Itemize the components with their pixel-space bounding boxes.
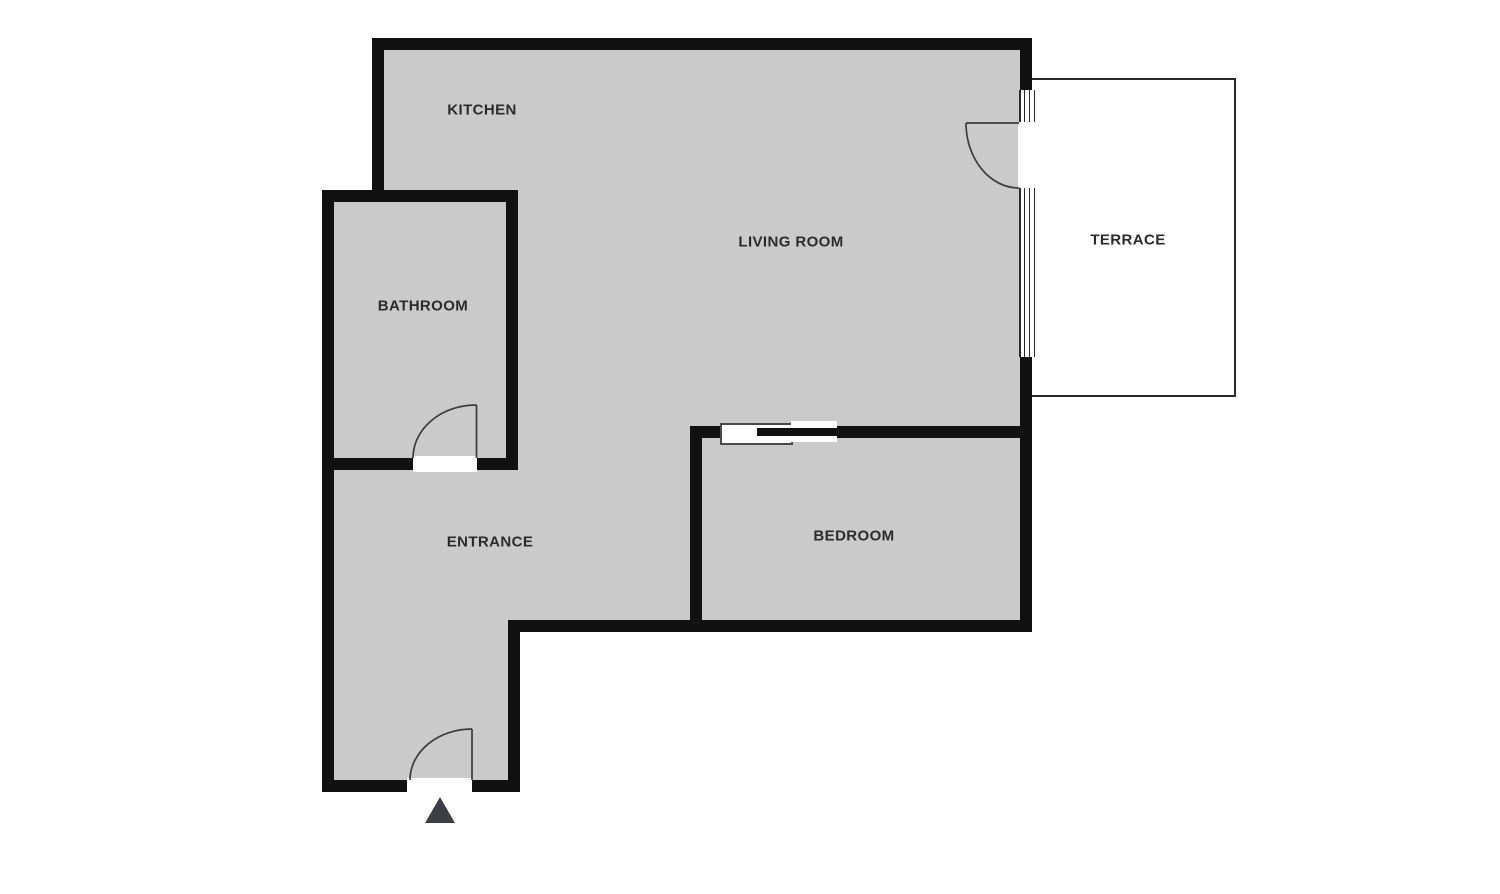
- wall-right-upper-stub: [1020, 38, 1032, 92]
- wall-left: [322, 190, 334, 792]
- wall-bedroom-left: [690, 426, 702, 632]
- wall-top: [372, 38, 1032, 50]
- room-label-bathroom: BATHROOM: [378, 298, 468, 315]
- entrance-door-opening: [407, 778, 472, 794]
- wall-corridor-right: [508, 620, 520, 792]
- sliding-door-track: [757, 428, 838, 436]
- room-label-terrace: TERRACE: [1090, 232, 1165, 249]
- entrance-arrow-icon: [425, 797, 455, 823]
- room-label-bedroom: BEDROOM: [813, 528, 894, 545]
- room-label-entrance: ENTRANCE: [447, 534, 534, 551]
- wall-bottom-main: [510, 620, 1032, 632]
- wall-right-lower: [1020, 357, 1032, 632]
- wall-bathroom-right: [506, 190, 518, 470]
- room-label-living-room: LIVING ROOM: [738, 234, 843, 251]
- terrace-door-opening: [1018, 122, 1036, 188]
- room-label-kitchen: KITCHEN: [447, 102, 516, 119]
- floor-area-west: [322, 190, 518, 792]
- wall-bathroom-top: [322, 190, 518, 202]
- floor-plan: KITCHEN LIVING ROOM TERRACE BATHROOM ENT…: [0, 0, 1500, 894]
- wall-kitchen-left: [372, 38, 384, 202]
- bathroom-door-opening: [413, 456, 477, 472]
